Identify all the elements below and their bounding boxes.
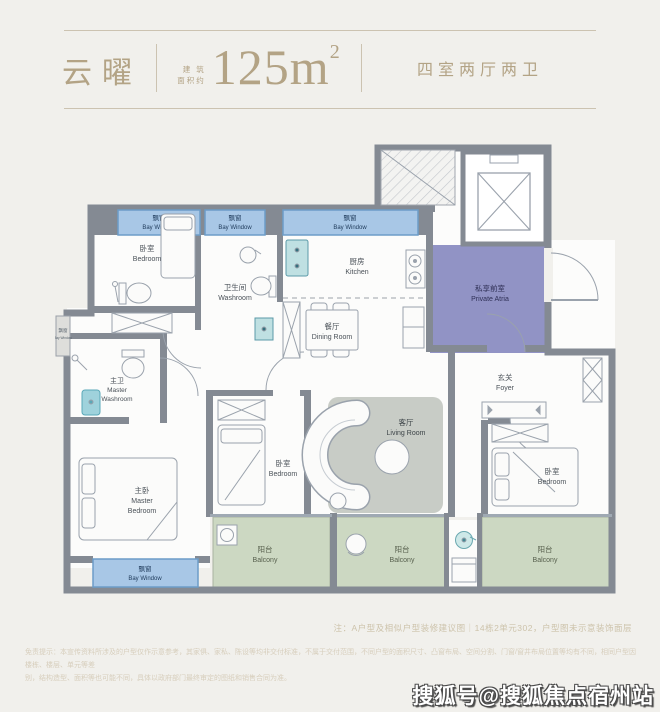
svg-text:Washroom: Washroom [218, 295, 252, 302]
svg-text:Bay Window: Bay Window [128, 576, 162, 582]
svg-text:餐厅: 餐厅 [325, 322, 340, 331]
area-label-bottom: 面积约 [177, 75, 206, 86]
svg-text:Bay Window: Bay Window [333, 225, 367, 231]
wardrobe-2 [218, 400, 265, 420]
bay-window-master: 飘窗 Bay Window [93, 559, 198, 587]
svg-text:Washroom: Washroom [101, 396, 132, 403]
svg-text:主卫: 主卫 [110, 376, 124, 385]
svg-text:玄关: 玄关 [498, 372, 513, 382]
svg-text:Bedroom: Bedroom [133, 256, 162, 263]
svg-text:Dining Room: Dining Room [312, 334, 353, 341]
svg-text:Living Room: Living Room [387, 430, 426, 437]
bed-master-pillow-1 [82, 464, 95, 494]
bed-3-pillow-1 [495, 453, 509, 476]
svg-text:主卧: 主卧 [135, 485, 150, 495]
washroom-sink [240, 247, 256, 263]
bay-window-3: 飘窗 Bay Window [283, 210, 418, 235]
svg-text:卧室: 卧室 [140, 243, 155, 253]
plan-note: 注：A户型及相似户型装修建议图｜14栋2单元302，户型图未示意装饰面层 [333, 622, 632, 634]
shower-wand-head [113, 282, 118, 287]
svg-text:Bay Window: Bay Window [55, 336, 73, 340]
svg-text:厨房: 厨房 [350, 256, 365, 266]
balcony1-basin [221, 529, 234, 542]
watermark: 搜狐号@搜狐焦点宿州站 [413, 680, 654, 710]
area-group: 建 筑 面积约 125m2 [160, 36, 358, 98]
floorplan-drawing: 飘窗 Bay Window 飘窗 Bay Window 飘窗 Bay Windo… [55, 140, 620, 605]
washer [452, 558, 476, 582]
header-divider-2 [361, 44, 362, 92]
bay-window-2: 飘窗 Bay Window [205, 210, 265, 235]
svg-text:Bedroom: Bedroom [269, 471, 298, 478]
svg-text:Bedroom: Bedroom [538, 479, 567, 486]
svg-text:Bedroom: Bedroom [128, 508, 157, 515]
svg-text:Bay Window: Bay Window [218, 225, 252, 231]
bed-master-pillow-2 [82, 498, 95, 528]
svg-text:Master: Master [107, 387, 128, 394]
bed-2-pillow [221, 429, 262, 443]
layout-type: 四室两厅两卫 [365, 56, 595, 80]
kitchen-sink-drain1 [295, 248, 299, 252]
svg-text:飘窗: 飘窗 [59, 327, 68, 334]
kitchen-sink-drain2 [295, 264, 299, 268]
coffee-table [375, 440, 409, 474]
wardrobe-1 [112, 313, 172, 333]
svg-text:Balcony: Balcony [390, 557, 415, 564]
svg-text:卫生间: 卫生间 [224, 282, 247, 292]
svg-text:Foyer: Foyer [496, 385, 515, 392]
svg-text:阳台: 阳台 [258, 544, 273, 554]
toilet-master-bowl [122, 358, 144, 378]
kitchen-sink [286, 240, 308, 276]
svg-text:飘窗: 飘窗 [344, 213, 357, 222]
svg-text:Kitchen: Kitchen [345, 269, 368, 276]
shower-drain [89, 400, 93, 404]
balcony2-chair [346, 534, 366, 554]
toilet-2-bowl [251, 277, 271, 295]
disclaimer-line-1: 免责提示：本宣传资料所涉及的户型仅作示意参考，其家俱、家私、陈设等均非交付标准，… [25, 646, 637, 672]
svg-text:Balcony: Balcony [533, 557, 558, 564]
svg-text:阳台: 阳台 [538, 544, 553, 554]
header-divider-1 [156, 44, 157, 92]
bed-3-pillow-2 [495, 479, 509, 500]
svg-text:卧室: 卧室 [276, 458, 291, 468]
side-table [330, 493, 346, 509]
dining-cabinet [283, 302, 300, 358]
area-exponent: 2 [330, 41, 341, 63]
bed-1-pillow [164, 217, 192, 230]
svg-text:Master: Master [131, 498, 153, 505]
svg-text:Balcony: Balcony [253, 557, 278, 564]
toilet-master-tank [122, 350, 144, 357]
header-rule-top [64, 30, 596, 31]
svg-text:客厅: 客厅 [399, 417, 414, 427]
plan-title: 云曜 [52, 48, 152, 92]
stairwell [381, 150, 455, 205]
svg-text:阳台: 阳台 [395, 544, 410, 554]
area-label-top: 建 筑 [177, 64, 206, 75]
area-value: 125m2 [212, 38, 341, 96]
toilet-1-tank [119, 283, 126, 304]
svg-text:卧室: 卧室 [545, 466, 560, 476]
toilet-1-bowl [127, 283, 151, 303]
svg-text:私享前室: 私享前室 [475, 283, 505, 293]
floorplan-card: 云曜 建 筑 面积约 125m2 四室两厅两卫 [0, 0, 660, 712]
header-rule-bottom [64, 108, 596, 109]
svg-text:飘窗: 飘窗 [229, 213, 242, 222]
area-label: 建 筑 面积约 [177, 64, 206, 86]
foyer-closet [583, 358, 602, 402]
bay-window-left: 飘窗 Bay Window [55, 316, 73, 356]
svg-text:Private Atria: Private Atria [471, 296, 509, 303]
wardrobe-3 [492, 424, 548, 442]
elevator [463, 152, 546, 244]
svg-text:飘窗: 飘窗 [139, 564, 152, 573]
